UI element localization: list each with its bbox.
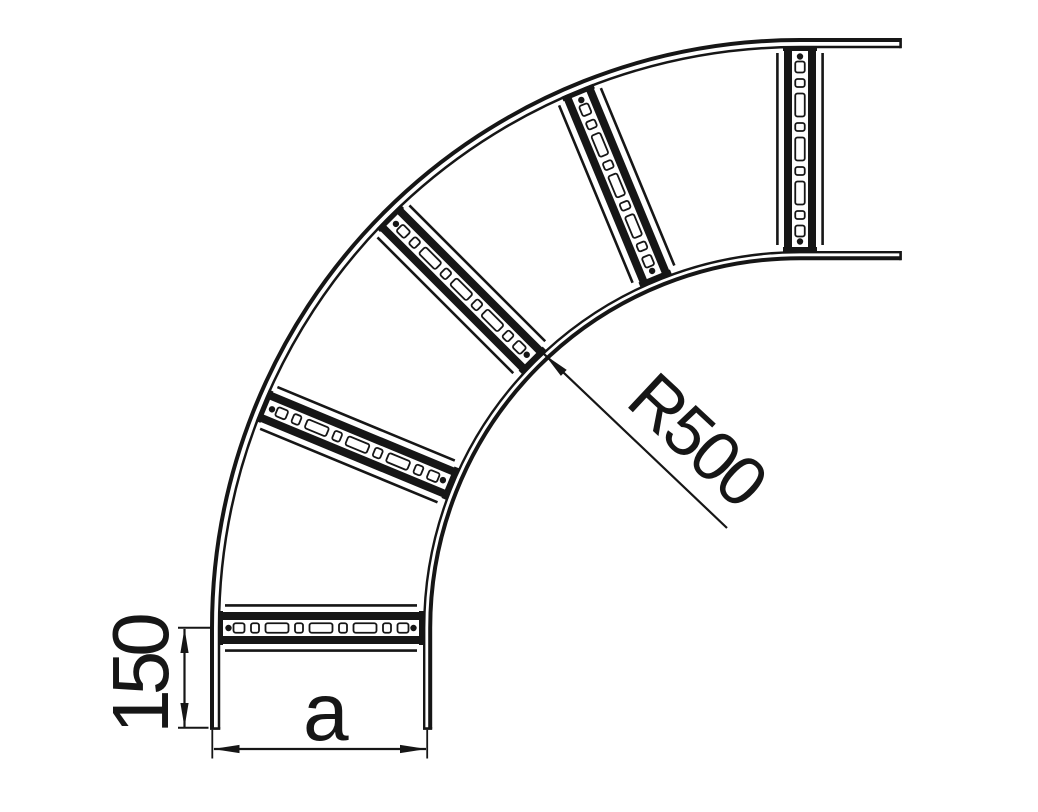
dimension-a: a (212, 667, 427, 759)
rung-slot (502, 330, 514, 342)
ladder-rung (777, 46, 822, 252)
cable-ladder (210, 38, 901, 729)
ladder-rung (218, 605, 424, 650)
rung-slot (251, 623, 259, 633)
rung-slot (396, 224, 410, 238)
rung-slot (795, 79, 805, 87)
rung-slot (413, 464, 424, 476)
rung-slot (426, 470, 440, 483)
dimension-a-label: a (303, 667, 349, 758)
ladder-rung (254, 384, 462, 505)
rung-slot (440, 268, 452, 280)
rung-slot (291, 414, 302, 426)
rung-slot (636, 241, 648, 252)
rung-slot (339, 623, 347, 633)
rung-slot (310, 623, 333, 633)
rung-rivet (797, 53, 803, 59)
rung-slot (471, 299, 483, 311)
rung-slot (295, 623, 303, 633)
rung-rivet (410, 625, 416, 631)
rung-rivet (797, 238, 803, 244)
ladder-rung (556, 82, 677, 290)
rung-web-bar (808, 48, 816, 250)
dimension-150-label: 150 (96, 615, 185, 734)
rung-rivet (268, 405, 276, 413)
rung-slot (795, 62, 805, 73)
dimension-radius: R500 (523, 334, 781, 528)
rung-slot (795, 226, 805, 237)
rung-web-bar (396, 207, 544, 355)
rung-web-bar (220, 612, 422, 620)
rung-slot (383, 623, 391, 633)
dimension-150: 150 (96, 615, 212, 734)
rung-slot (586, 119, 598, 130)
rung-slot (795, 167, 805, 175)
rung-slot (234, 623, 245, 633)
rung-slot (408, 236, 420, 248)
ladder-rung (373, 201, 551, 379)
rung-slot (619, 200, 631, 211)
rung-slot (795, 94, 805, 117)
rung-slot (275, 407, 289, 420)
rung-slot (354, 623, 377, 633)
rung-slot (795, 211, 805, 219)
dimension-radius-label: R500 (614, 358, 782, 522)
rung-slot (372, 447, 383, 459)
rung-rivet (439, 476, 447, 484)
rung-web-bar (379, 224, 527, 372)
rung-rivet (577, 96, 585, 104)
radius-leader-arrowhead (545, 355, 567, 376)
rung-slot (398, 623, 409, 633)
rung-web-bar (784, 48, 792, 250)
rung-slot (642, 254, 655, 268)
rung-slot (579, 103, 592, 117)
rung-slot (795, 182, 805, 205)
technical-drawing: 150 a R500 (0, 0, 1038, 812)
rung-rivet (225, 625, 231, 631)
rung-slot (602, 160, 614, 171)
rung-slot (795, 138, 805, 161)
rung-slot (332, 430, 343, 442)
rung-slot (266, 623, 289, 633)
rung-web-bar (220, 636, 422, 644)
rung-rivet (648, 267, 656, 275)
cable-ladder-bend-drawing: 150 a R500 (0, 0, 1038, 812)
rung-slot (512, 340, 526, 354)
rung-slot (795, 123, 805, 131)
